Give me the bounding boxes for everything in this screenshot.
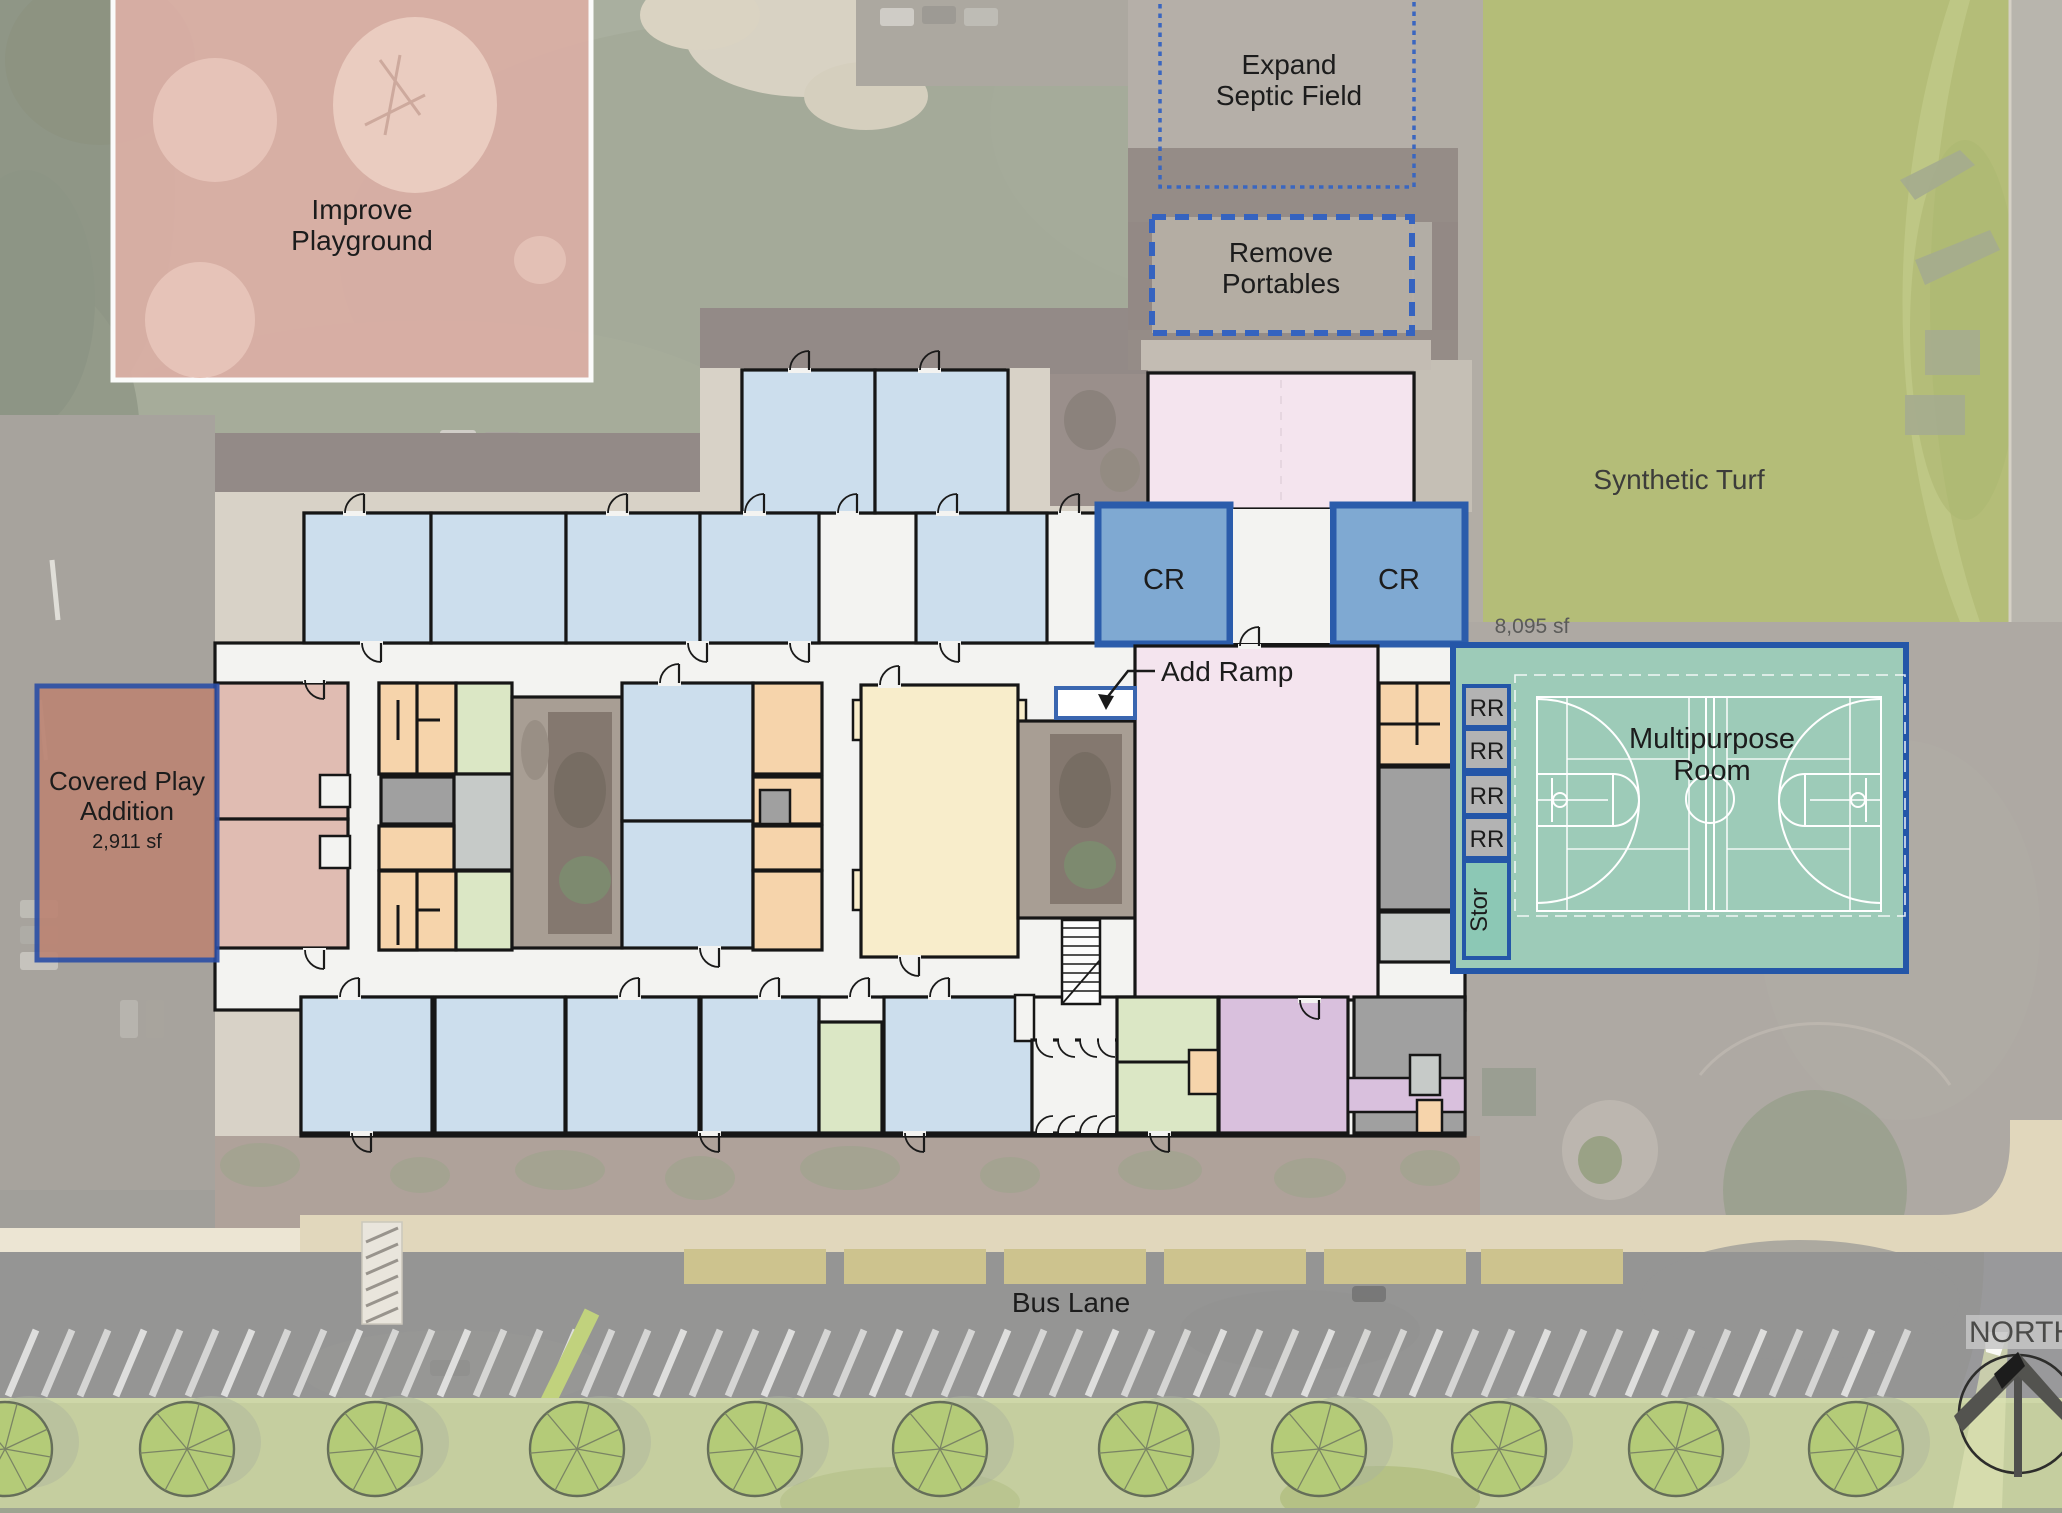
svg-text:Septic Field: Septic Field bbox=[1216, 80, 1362, 111]
svg-text:Expand: Expand bbox=[1242, 49, 1337, 80]
svg-text:RR: RR bbox=[1470, 783, 1505, 810]
svg-text:Room: Room bbox=[1673, 755, 1750, 787]
svg-text:Improve: Improve bbox=[311, 194, 412, 225]
svg-text:Synthetic Turf: Synthetic Turf bbox=[1593, 464, 1764, 495]
svg-text:CR: CR bbox=[1378, 564, 1420, 596]
svg-text:Multipurpose: Multipurpose bbox=[1629, 723, 1795, 755]
svg-text:RR: RR bbox=[1470, 695, 1505, 722]
svg-text:RR: RR bbox=[1470, 738, 1505, 765]
svg-text:Bus Lane: Bus Lane bbox=[1012, 1287, 1130, 1318]
svg-text:2,911 sf: 2,911 sf bbox=[92, 831, 162, 853]
svg-text:RR: RR bbox=[1470, 826, 1505, 853]
svg-text:Covered Play: Covered Play bbox=[49, 766, 205, 796]
svg-text:Remove: Remove bbox=[1229, 237, 1333, 268]
svg-text:NORTH: NORTH bbox=[1969, 1316, 2062, 1349]
svg-text:Portables: Portables bbox=[1222, 268, 1340, 299]
svg-text:Stor: Stor bbox=[1466, 888, 1493, 932]
svg-text:Add Ramp: Add Ramp bbox=[1161, 656, 1293, 687]
svg-text:Playground: Playground bbox=[291, 225, 433, 256]
svg-text:CR: CR bbox=[1143, 564, 1185, 596]
svg-text:8,095 sf: 8,095 sf bbox=[1495, 615, 1570, 638]
svg-text:Addition: Addition bbox=[80, 796, 174, 826]
